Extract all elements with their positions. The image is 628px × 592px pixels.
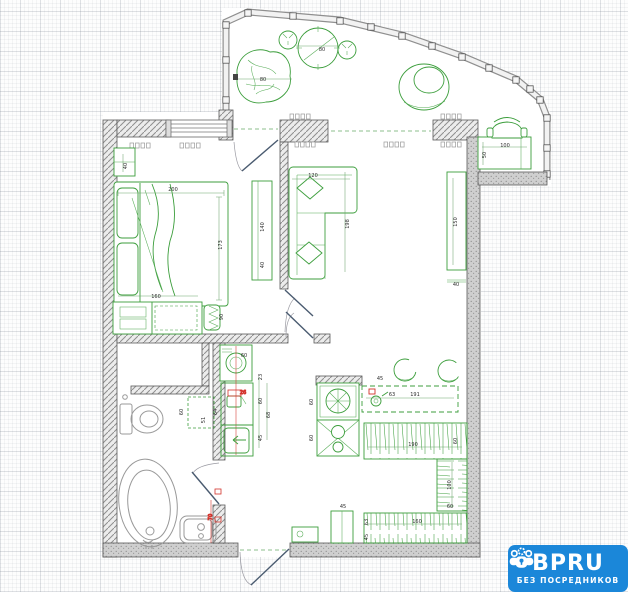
dimension-label: 45 xyxy=(364,534,370,540)
radiator-icon xyxy=(307,114,311,119)
radiator-icon xyxy=(141,143,145,148)
mullion-icon xyxy=(527,86,533,92)
radiator-icon xyxy=(191,143,195,148)
radiator-icon xyxy=(312,142,316,147)
kitchen-counter xyxy=(362,386,458,412)
dimension-label: 63 xyxy=(364,519,370,525)
mullion-icon xyxy=(290,13,296,19)
dimension-label: 90 xyxy=(219,314,225,320)
radiator-icon xyxy=(401,142,405,147)
radiator-icon xyxy=(295,142,299,147)
dimension-label: 200 xyxy=(168,187,178,193)
mullion-icon xyxy=(223,22,229,28)
mullion-icon xyxy=(223,57,229,63)
dimension-label: 68 xyxy=(266,412,272,418)
dimension-label: 26 xyxy=(240,390,246,396)
mullion-icon xyxy=(513,77,519,83)
radiator-icon xyxy=(130,143,134,148)
entry-mat xyxy=(331,511,353,543)
mullion-icon xyxy=(459,54,465,60)
dimension-label: 160 xyxy=(151,294,161,300)
kitchen-hob xyxy=(317,383,359,420)
mullion-icon xyxy=(486,65,492,71)
watermark-brand: BPRU xyxy=(532,553,604,575)
dimension-label: 45 xyxy=(377,376,383,382)
radiator-icon xyxy=(186,143,190,148)
mullion-icon xyxy=(337,18,343,24)
radiator-icon xyxy=(301,114,305,119)
radiator-icon xyxy=(290,114,294,119)
radiator-icon xyxy=(384,142,388,147)
window-icon xyxy=(166,120,232,137)
dimension-label: 100 xyxy=(447,480,453,490)
dimension-label: 45 xyxy=(258,435,264,441)
kitchen-sink-unit xyxy=(317,420,359,456)
dimension-label: 40 xyxy=(453,282,459,288)
wardrobe-rail-top xyxy=(364,423,467,459)
dimension-label: 70 xyxy=(208,514,214,520)
dimension-label: 80 xyxy=(260,77,266,83)
radiator-icon xyxy=(452,114,456,119)
mullion-icon xyxy=(544,145,550,151)
wardrobe-rail-bottom xyxy=(364,513,467,543)
mullion-icon xyxy=(399,33,405,39)
dimension-label: 80 xyxy=(319,47,325,53)
nightstand xyxy=(114,148,135,176)
dimension-label: 23 xyxy=(258,374,264,380)
dimension-label: 45 xyxy=(340,504,346,510)
dimension-label: 140 xyxy=(260,222,266,232)
radiator-icon xyxy=(180,143,184,148)
apartment-floor-plan: 8080100504020017314040160901201981504060… xyxy=(0,0,628,592)
dimension-label: 120 xyxy=(308,173,318,179)
watermark-tagline: БЕЗ ПОСРЕДНИКОВ xyxy=(517,576,620,585)
dimension-label: 60 xyxy=(258,398,264,404)
people-group-lock-icon xyxy=(508,545,535,572)
mullion-icon xyxy=(223,97,229,103)
dimension-label: 191 xyxy=(410,392,420,398)
dimension-label: 64 xyxy=(213,409,219,415)
dimension-label: 60 xyxy=(309,399,315,405)
radiator-icon xyxy=(458,142,462,147)
radiator-icon xyxy=(147,143,151,148)
dimension-label: 40 xyxy=(123,163,129,169)
radiator-icon xyxy=(447,142,451,147)
dimension-label: 60 xyxy=(179,409,185,415)
radiator-icon xyxy=(136,143,140,148)
radiator-icon xyxy=(458,114,462,119)
dimension-label: 160 xyxy=(412,519,422,525)
dimension-label: 60 xyxy=(453,438,459,444)
dimension-label: 60 xyxy=(447,504,453,510)
mullion-icon xyxy=(429,43,435,49)
radiator-icon xyxy=(441,142,445,147)
radiator-icon xyxy=(197,143,201,148)
dimension-label: 50 xyxy=(482,152,488,158)
radiator-icon xyxy=(301,142,305,147)
radiator-icon xyxy=(447,114,451,119)
dimension-label: 63 xyxy=(389,392,395,398)
dimension-label: 198 xyxy=(345,219,351,229)
radiator-icon xyxy=(452,142,456,147)
dimension-label: 150 xyxy=(453,217,459,227)
dimension-label: 100 xyxy=(500,143,510,149)
mullion-icon xyxy=(245,10,251,16)
bed xyxy=(114,182,228,306)
radiator-icon xyxy=(306,142,310,147)
dimension-label: 40 xyxy=(260,262,266,268)
dimension-label: 60 xyxy=(309,435,315,441)
radiator-icon xyxy=(441,114,445,119)
dimension-label: 51 xyxy=(201,417,207,423)
bpru-watermark[interactable]: BPRU БЕЗ ПОСРЕДНИКОВ xyxy=(508,545,628,592)
radiator-icon xyxy=(390,142,394,147)
radiator-icon xyxy=(296,114,300,119)
floor-plan-screenshot: 8080100504020017314040160901201981504060… xyxy=(0,0,628,592)
mullion-icon xyxy=(368,24,374,30)
shoe-box xyxy=(292,527,318,542)
dimension-label: 190 xyxy=(408,442,418,448)
dimension-label: 60 xyxy=(241,353,247,359)
dimension-label: 173 xyxy=(218,240,224,250)
dresser xyxy=(113,302,202,334)
radiator-icon xyxy=(395,142,399,147)
mullion-icon xyxy=(544,115,550,121)
mullion-icon xyxy=(537,97,543,103)
